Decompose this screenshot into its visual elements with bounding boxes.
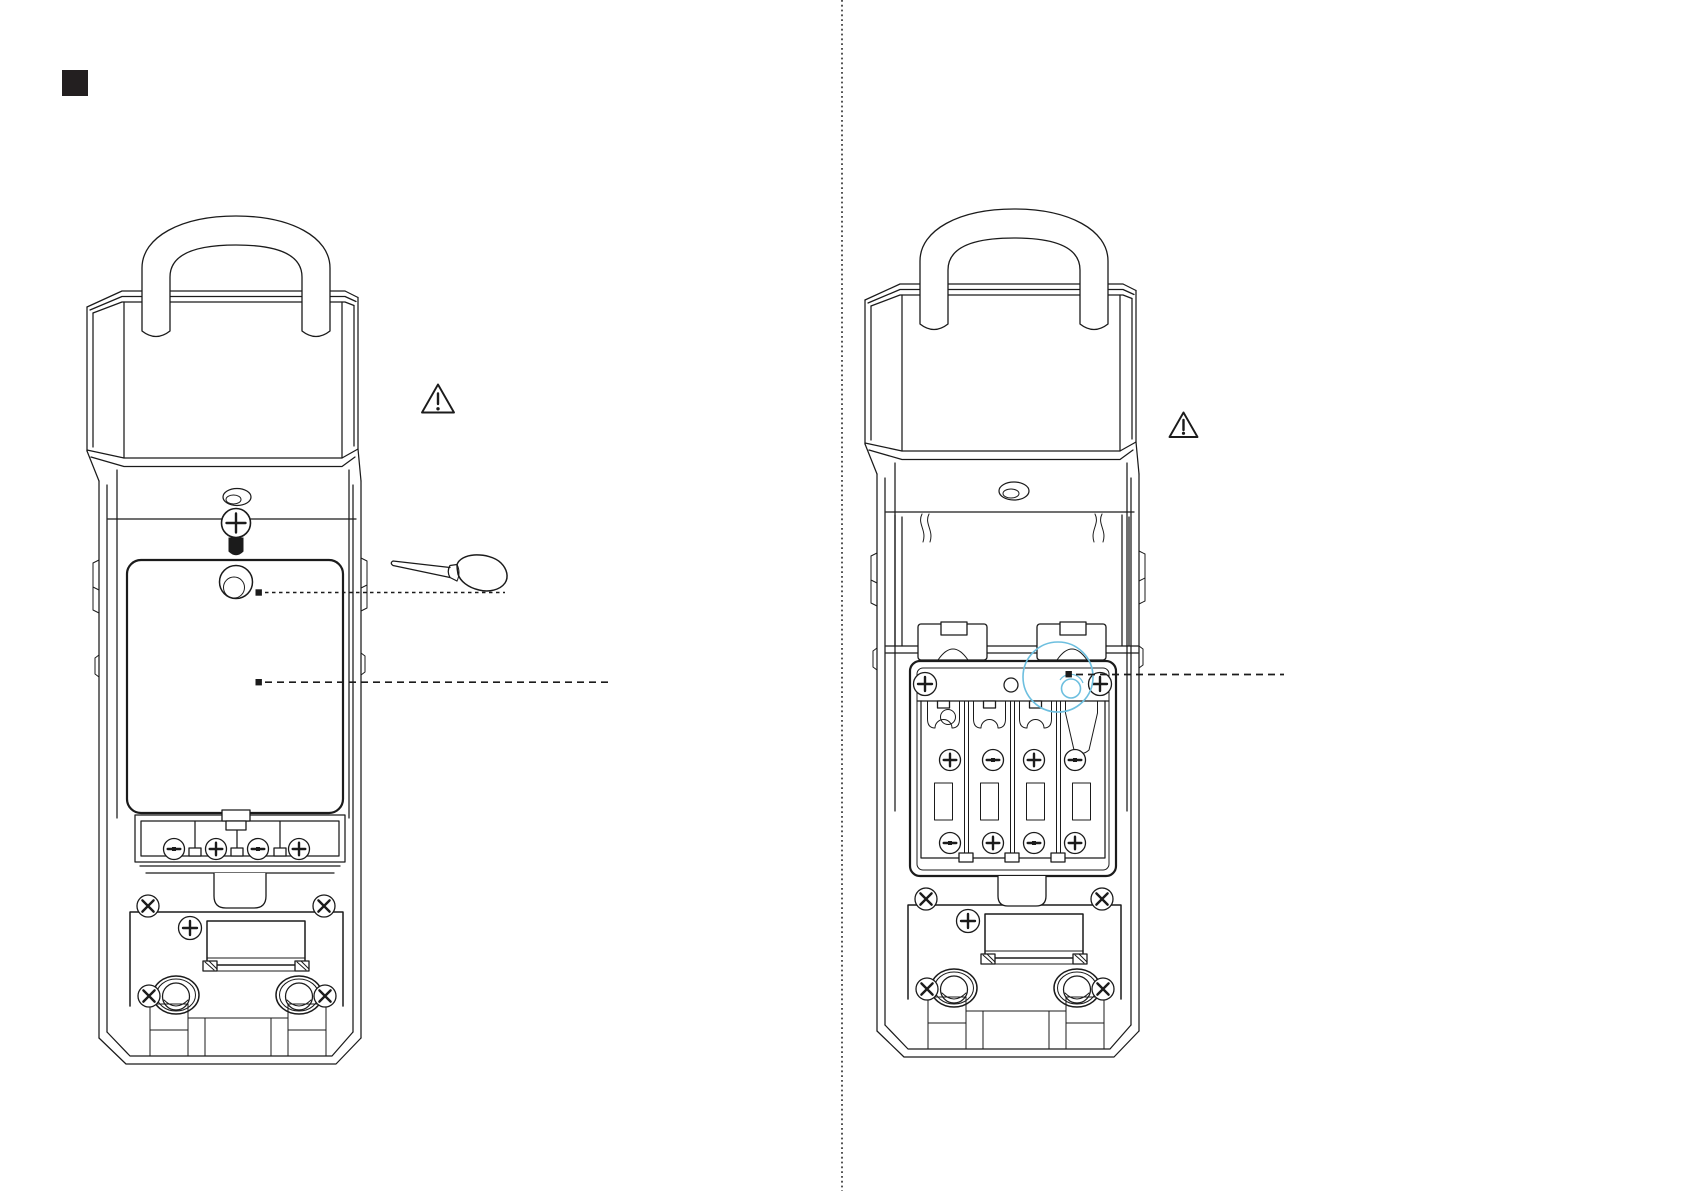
row-foot — [274, 848, 286, 856]
slot-dividers — [965, 701, 1061, 858]
latch-tab-inner — [226, 821, 246, 830]
latch-block-right — [1037, 622, 1106, 660]
screw-plug — [229, 538, 244, 556]
screwdriver-icon — [391, 555, 507, 591]
minus-polarity-contact — [164, 839, 185, 860]
minus-polarity-contact — [248, 839, 269, 860]
cover-hinge-hooks — [921, 514, 1104, 542]
plus-polarity-contact — [1024, 750, 1045, 771]
tray-latch-tongue — [998, 876, 1046, 906]
section-marker — [62, 70, 88, 96]
row-foot — [231, 848, 243, 856]
minus-polarity-contact — [1065, 750, 1086, 771]
callout-square — [256, 679, 262, 685]
slot-cutout — [1027, 783, 1045, 820]
warning-triangle-icon-right — [1170, 413, 1198, 438]
illustration-canvas — [0, 0, 1684, 1191]
callout-square — [1066, 671, 1072, 677]
warning-triangle-icon-left — [422, 385, 454, 413]
slot-cutout — [1073, 783, 1091, 820]
latch-block-left — [918, 622, 987, 660]
callout-cover-screw — [256, 589, 506, 595]
contact-tab — [938, 701, 950, 708]
plus-polarity-contact — [206, 839, 227, 860]
tray-foot — [1005, 853, 1019, 862]
screw-recess-inner — [226, 495, 241, 504]
plus-polarity-contact — [940, 750, 961, 771]
slot-cutout — [981, 783, 999, 820]
battery-contacts-top-row — [940, 750, 1086, 771]
row-foot — [189, 848, 201, 856]
tray-foot — [1051, 853, 1065, 862]
contact-tab — [984, 701, 996, 708]
callout-cover-surface — [256, 679, 614, 685]
figure-lockbox-cover-closed — [87, 216, 613, 1064]
minus-polarity-contact — [1024, 833, 1045, 854]
tray-center-hole — [1004, 678, 1018, 692]
latch-tongue — [214, 873, 266, 908]
finger-recess-inner — [224, 577, 245, 598]
tray-phillips-screw-left — [914, 673, 937, 696]
minus-polarity-contact — [940, 833, 961, 854]
battery-contacts-bottom-row — [940, 833, 1086, 854]
plus-polarity-contact — [983, 833, 1004, 854]
slot1-contact-ring — [941, 710, 956, 725]
callout-square — [256, 589, 262, 595]
cover-screw-hole-inner — [1003, 489, 1019, 498]
fixing-phillips-screw — [222, 509, 251, 538]
lockbox-shell — [87, 216, 367, 1064]
finger-recess-outer — [220, 566, 253, 599]
tray-foot — [959, 853, 973, 862]
figure-lockbox-cover-removed — [865, 209, 1284, 1057]
minus-polarity-contact — [983, 750, 1004, 771]
row-lower-tray — [140, 866, 340, 873]
slot-cutout — [935, 783, 953, 820]
slot4-eject-funnel — [1066, 701, 1098, 754]
manual-page — [0, 0, 1684, 1191]
plus-polarity-contact — [1065, 833, 1086, 854]
plus-polarity-contact — [289, 839, 310, 860]
latch-tab — [222, 810, 250, 821]
